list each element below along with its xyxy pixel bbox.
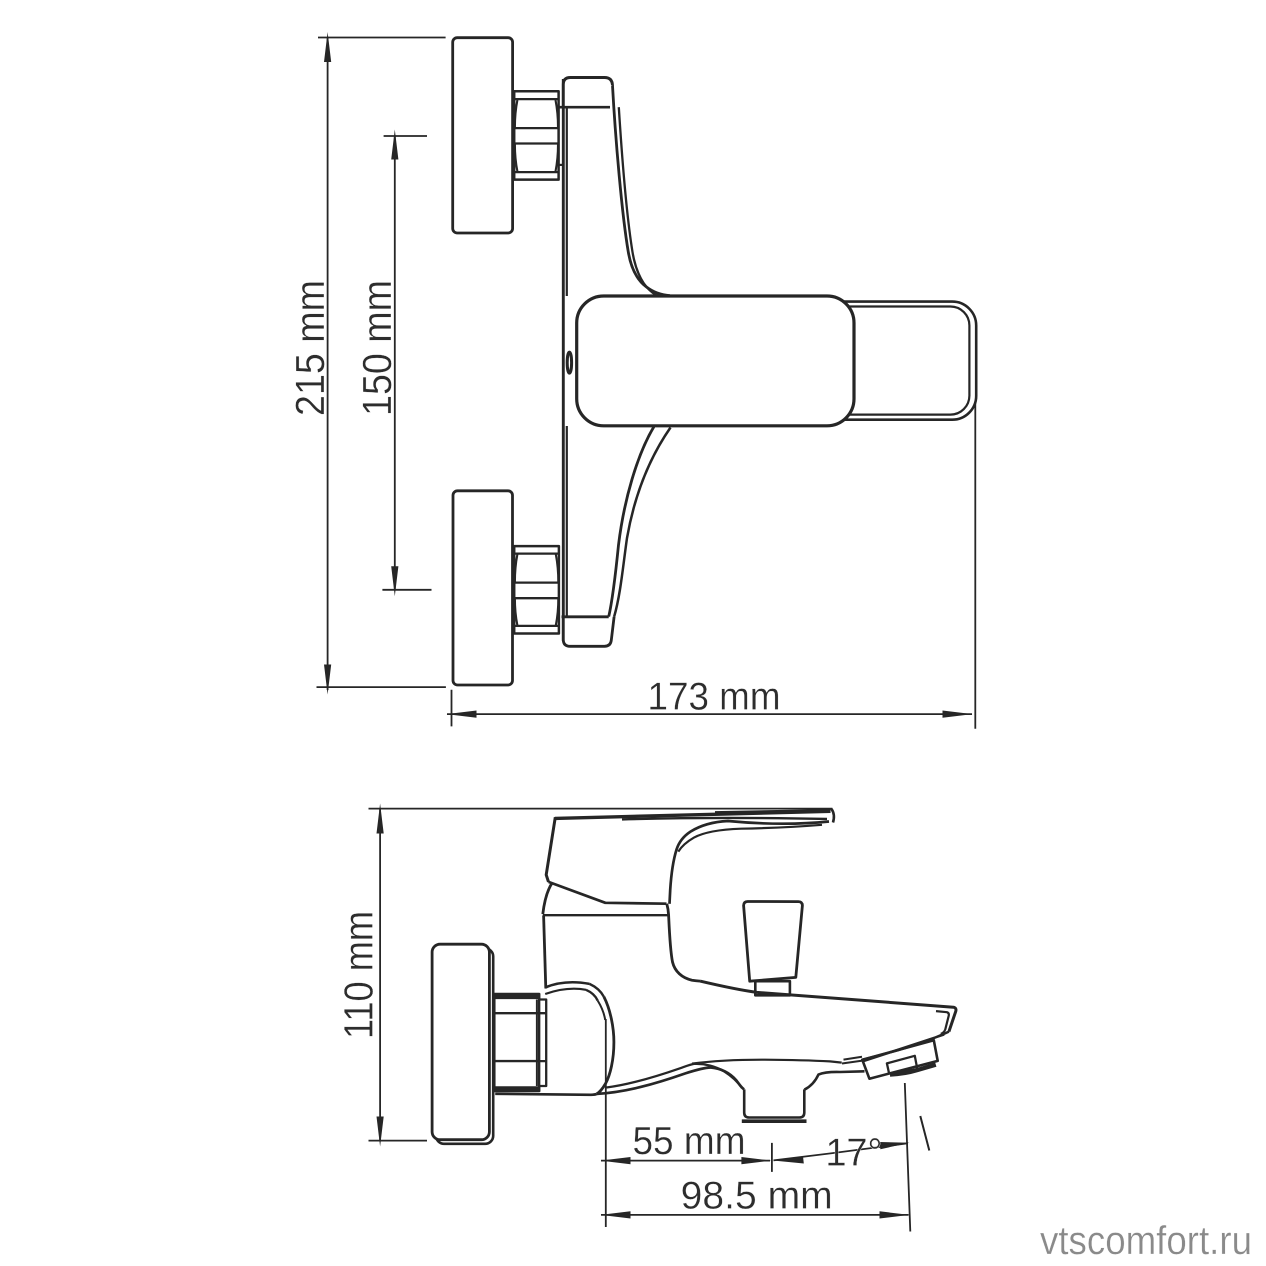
svg-text:215 mm: 215 mm — [287, 280, 333, 416]
svg-text:vtscomfort.ru: vtscomfort.ru — [1040, 1219, 1252, 1263]
svg-text:55 mm: 55 mm — [633, 1120, 746, 1163]
svg-text:150 mm: 150 mm — [354, 280, 400, 416]
svg-text:98.5 mm: 98.5 mm — [681, 1175, 833, 1218]
svg-text:173 mm: 173 mm — [648, 676, 781, 719]
svg-text:110 mm: 110 mm — [336, 911, 382, 1039]
svg-text:17°: 17° — [826, 1132, 883, 1175]
